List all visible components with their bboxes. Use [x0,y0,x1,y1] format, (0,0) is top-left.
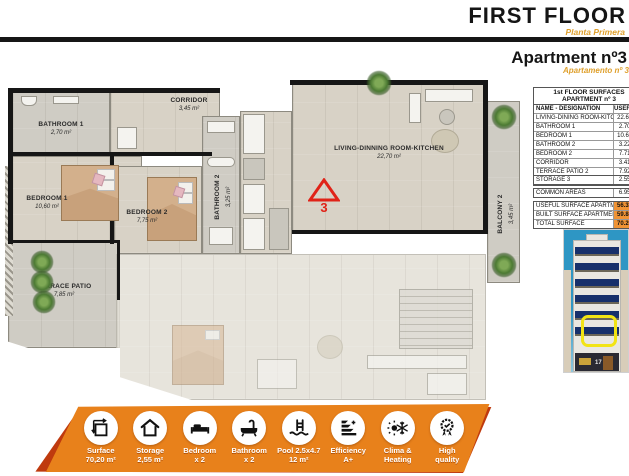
feature-quality: Highquality [423,409,473,471]
quality-icon [430,411,464,445]
table-title-line1: 1st FLOOR SURFACES [534,89,629,96]
table-row: COMMON AREAS6.95 m² [534,189,629,197]
marker-number: 3 [308,202,340,214]
feature-pool: Pool 2.5x4.712 m² [274,409,324,471]
table-header-row: NAME - DESIGNATION USEFUL SURFACE [534,105,629,113]
room-bedroom-2: BEDROOM 2 7,75 m² [114,166,202,254]
apartment-title: Apartment nº3 [511,48,627,68]
feature-climate: Clima &Heating [373,409,423,471]
feature-storage: Storage2,55 m² [126,409,176,471]
table-row: BEDROOM 27.71 m² [534,149,629,158]
header-divider [0,37,629,42]
feature-bathroom: Bathroomx 2 [225,409,275,471]
table-title-line2: APARTMENT nº 3 [534,96,629,103]
room-bathroom-2: BATHROOM 2 3,25 m² [202,116,240,254]
stairs [399,289,473,349]
feature-items: Surface70,20 m² Storage2,55 m² Bedroomx … [76,409,472,471]
table-row: BATHROOM 23.22 m² [534,140,629,149]
feature-surface: Surface70,20 m² [76,409,126,471]
table-row: STORAGE 32.55 m² [534,176,629,184]
plant [491,252,517,278]
room-kitchen-strip [240,111,292,254]
table-row: LIVING-DINING ROOM-KITCHEN22.60 m² [534,113,629,122]
room-terrace: TERRACE PATIO 7,85 m² [8,242,120,348]
page-title: FIRST FLOOR [468,3,626,29]
efficiency-icon [331,411,365,445]
table-row: CORRIDOR3.41 m² [534,158,629,167]
table-row: TOTAL SURFACE70.20 m² [534,219,629,228]
floor-plan: BATHROOM 1 2,70 m² CORRIDOR 3,45 m² BEDR… [8,56,520,402]
common-areas-block: COMMON AREAS6.95 m² [533,188,629,198]
bedroom-icon [183,411,217,445]
plant [491,104,517,130]
bathroom-icon [232,411,266,445]
feature-efficiency: EfficiencyA+ [324,409,374,471]
surface-icon [84,411,118,445]
building-door [603,356,613,370]
feature-bedroom: Bedroomx 2 [175,409,225,471]
triangle-marker-icon [308,178,340,202]
surfaces-table: 1st FLOOR SURFACES APARTMENT nº 3 NAME -… [533,87,629,186]
pool-icon [282,411,316,445]
adjacent-apartment-area [116,254,486,400]
plant [366,70,392,96]
apartment-marker: 3 [308,178,340,214]
table-row: USEFUL SURFACE APARTMENT56.32 m² [534,202,629,210]
apartment-location-highlight [581,315,617,347]
plant [32,290,56,314]
apartment-subtitle: Apartamento nº 3 [563,66,629,75]
table-row: BUILT SURFACE APARTMENT59.85 m² [534,210,629,219]
room-bathroom-1: BATHROOM 1 2,70 m² [12,92,110,156]
page-subtitle: Planta Primera [565,27,625,37]
storage-row-block: STORAGE 32.55 m² [533,175,629,185]
brochure-page: { "header": {"title": "FIRST FLOOR", "su… [0,0,629,476]
climate-icon [381,411,415,445]
building-elevation-thumbnail: 17 [563,229,629,373]
storage-icon [133,411,167,445]
table-row: BATHROOM 12.70 m² [534,122,629,131]
summary-block: USEFUL SURFACE APARTMENT56.32 m² BUILT S… [533,201,629,229]
table-row: BEDROOM 110.62 m² [534,131,629,140]
street-number: 17 [595,360,602,366]
